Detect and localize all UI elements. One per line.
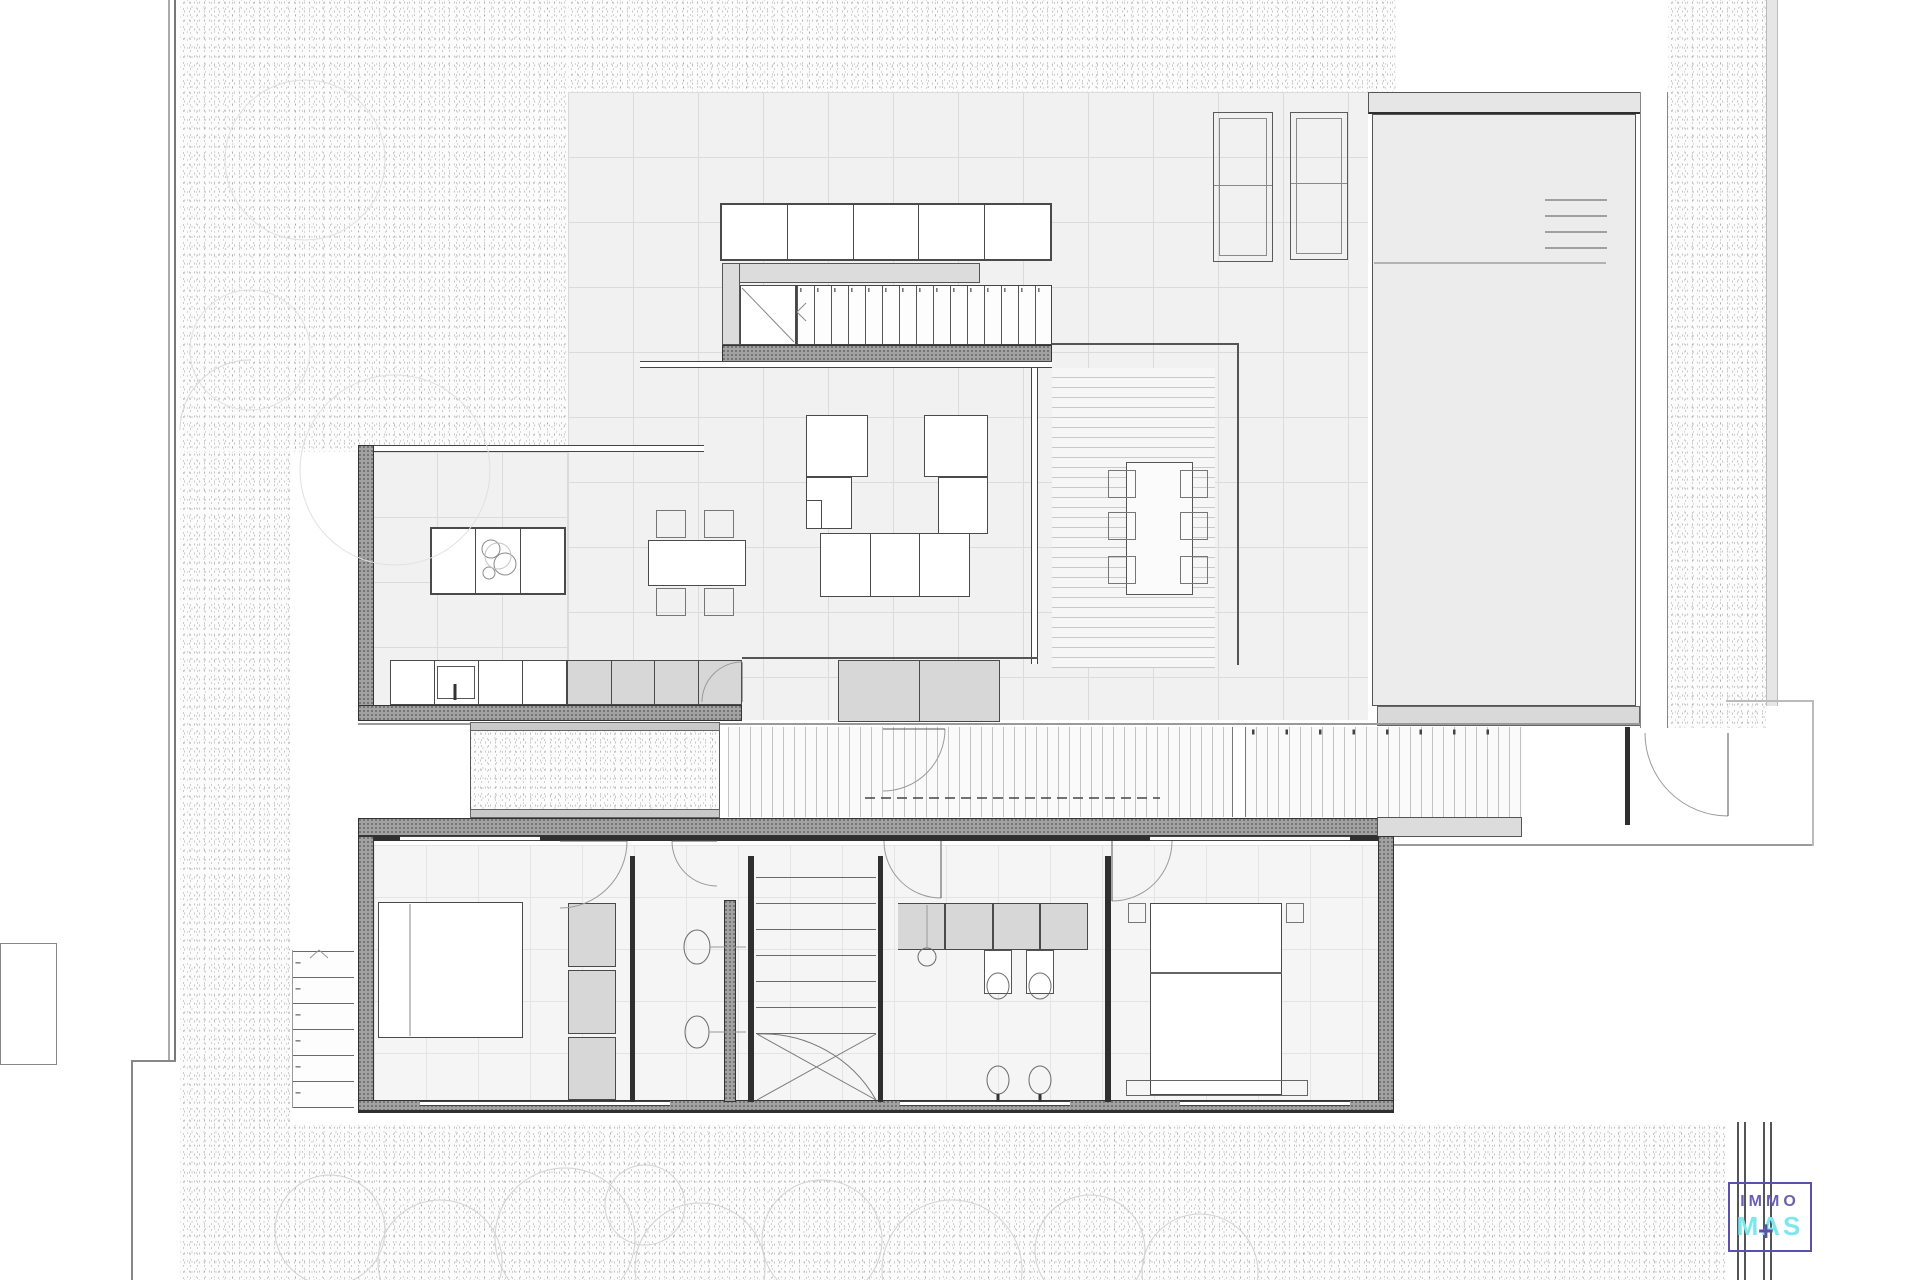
pendant-icon [918,948,936,966]
door-swing-arcs [180,360,1728,908]
toilet-icon [1029,1066,1051,1094]
floor-plan-sheet: IMMO MAS + [0,0,1920,1280]
stair-direction-exterior-icon [310,950,328,958]
pool-ladder-icon [1545,200,1607,248]
exterior-stair-details [298,950,328,1108]
toilet-icon [685,1016,709,1048]
logo-text-immo: IMMO [1730,1193,1810,1211]
cooktop-burners-icon [482,540,516,579]
stair-upper-details [742,288,1050,342]
sink-icon [987,973,1009,999]
toilet-icon [987,1066,1009,1094]
vegetation-icons [190,80,490,565]
sink-icon [684,930,710,964]
bath2-fixtures [918,905,1051,1102]
stair-lower-winder [757,1034,876,1100]
sink-icon [1029,973,1051,999]
bath1-fixtures [684,930,746,1048]
brand-logo: IMMO MAS + [1728,1182,1812,1252]
plan-linework [0,0,1920,1280]
stair-direction-upper-icon [797,303,806,321]
tree-icons [275,1165,1258,1280]
logo-plus-icon: + [1758,1216,1774,1247]
